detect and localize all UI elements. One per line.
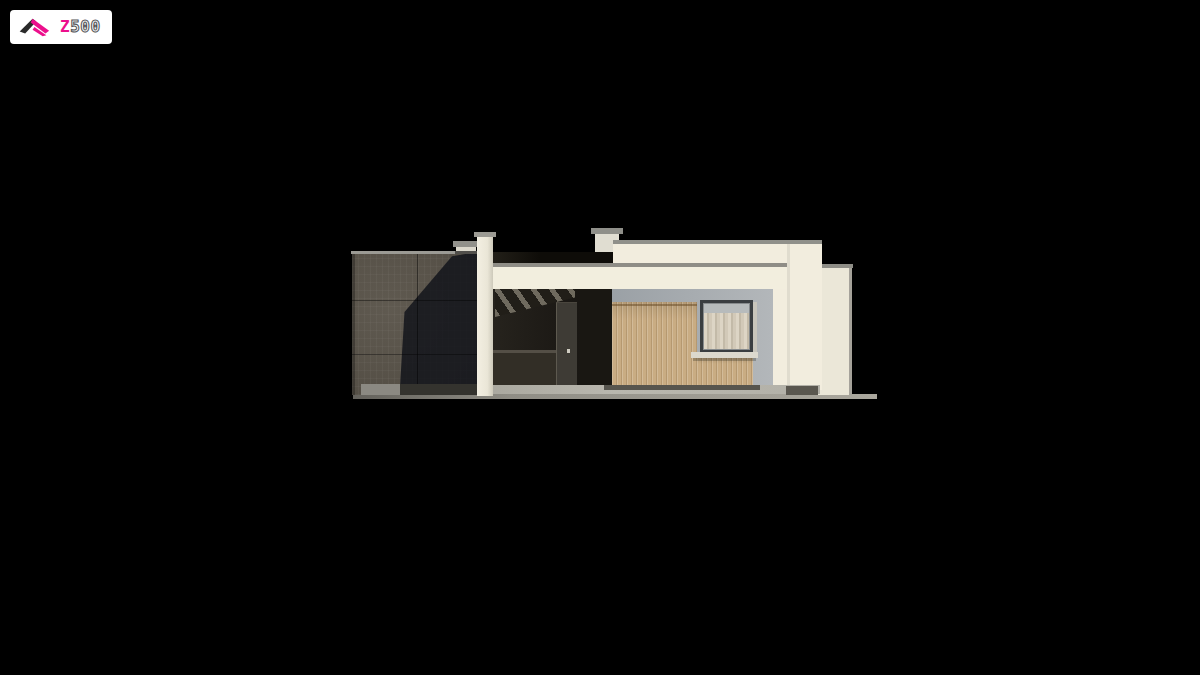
wood-base-shadow [604,385,760,390]
window-curtains [704,313,749,349]
window [700,300,753,353]
porch-dark-corner [580,289,612,385]
porch-interior [493,289,612,385]
porch-floor-reflection [493,353,556,385]
pillar-cap [474,232,496,237]
logo-wordmark: Z500 [60,10,101,44]
garage-plinth-left [361,384,400,395]
garage-left-edge [352,252,355,395]
panel-seam-vertical [417,252,418,395]
window-side-reveal [753,302,757,352]
logo: Z500 [10,10,112,44]
garage-cladding [352,252,477,395]
scene-canvas: Z500 [0,0,1200,675]
wood-cladding-below-window [697,358,753,385]
sill-shadow [693,358,756,361]
parapet-cap [613,240,822,244]
panel-seam-horizontal-1 [352,300,477,301]
porch-roof-beam [477,267,787,289]
roof-shadow-strip [493,252,613,263]
wood-cladding [612,302,697,385]
garage-diagonal-shadow [352,252,477,395]
garage-plinth-right [400,384,477,395]
garage-roof-edge-light [351,251,455,254]
panel-seam-horizontal-2 [352,354,477,355]
side-wall-edge-shadow [849,268,852,395]
wood-top-seam [612,304,697,306]
pillar [477,237,493,396]
base-step-right [786,386,818,395]
door-handle [567,349,570,353]
tall-section-edge-shade [787,244,790,387]
garage-roof-edge-dark [455,251,477,254]
roof-logo-icon [16,15,62,39]
side-wall [818,268,852,395]
logo-text-rest: 500 [70,17,100,36]
entry-door [556,302,577,385]
logo-text-accent: Z [60,17,70,36]
